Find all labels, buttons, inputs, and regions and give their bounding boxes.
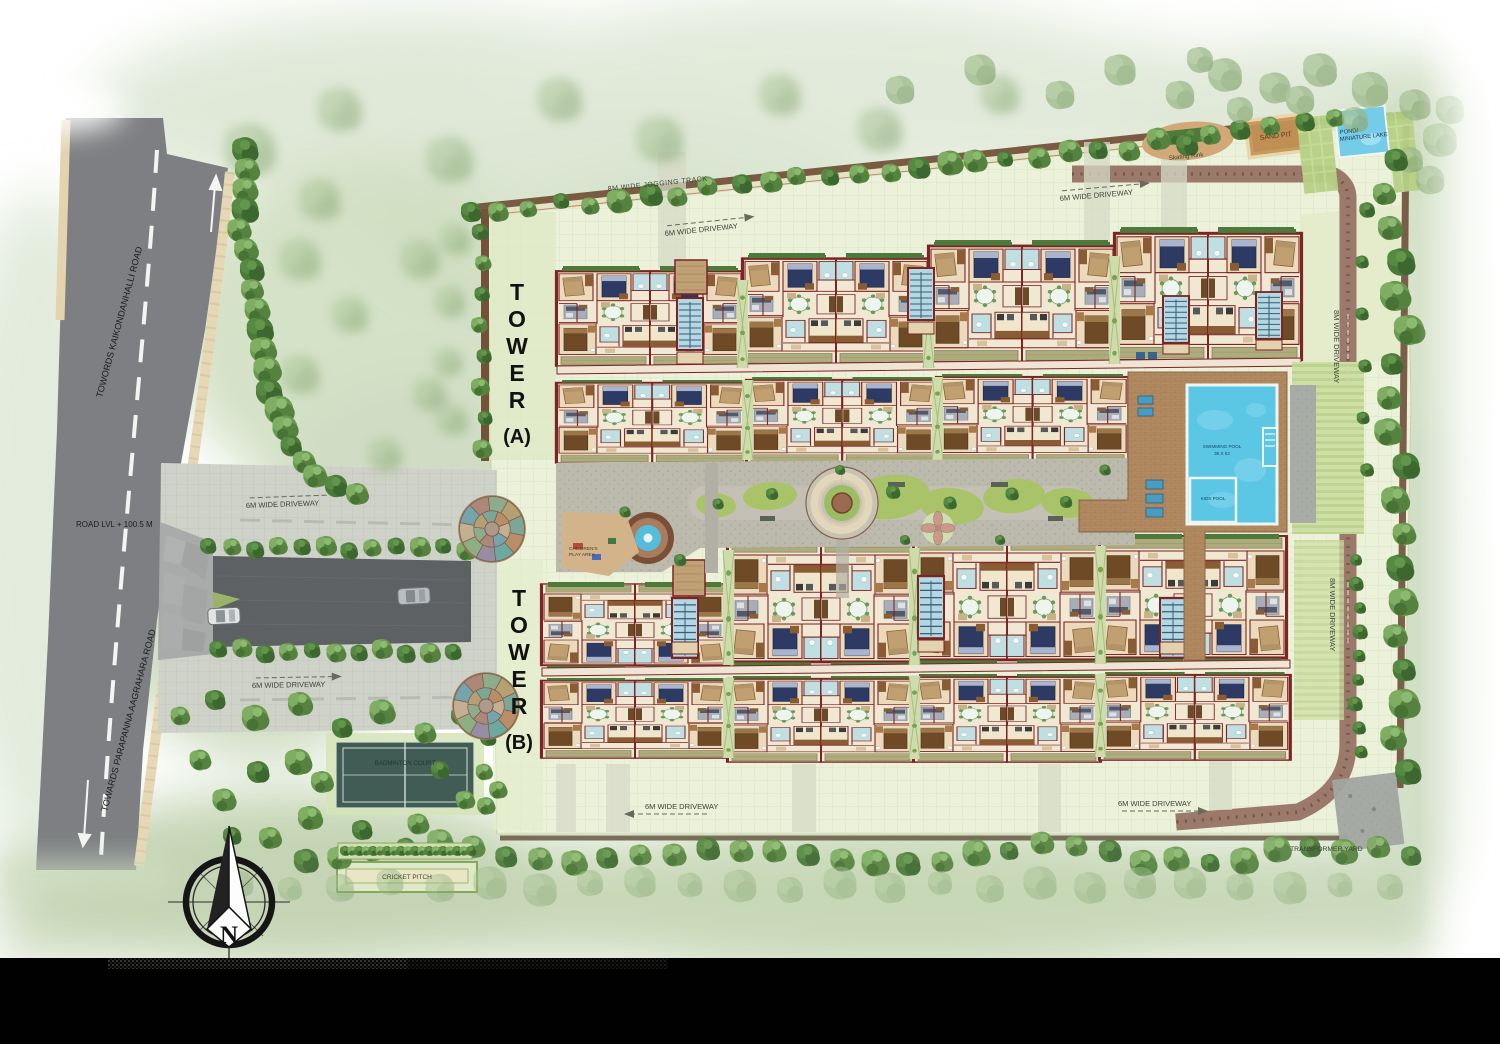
svg-text:(B): (B) — [505, 732, 533, 754]
svg-text:6M WIDE DRIVEWAY: 6M WIDE DRIVEWAY — [645, 802, 718, 811]
svg-text:TRANSFORMER YARD: TRANSFORMER YARD — [1290, 846, 1363, 853]
svg-text:6M WIDE DRIVEWAY: 6M WIDE DRIVEWAY — [1118, 799, 1191, 808]
svg-text:CHILDREN'S: CHILDREN'S — [569, 546, 598, 552]
svg-text:6M WIDE DRIVEWAY: 6M WIDE DRIVEWAY — [252, 680, 325, 690]
svg-text:CRICKET PITCH: CRICKET PITCH — [382, 874, 432, 881]
svg-text:T: T — [510, 279, 524, 305]
svg-text:ROAD LVL + 100.5 M: ROAD LVL + 100.5 M — [76, 520, 153, 529]
svg-text:8M WIDE DRIVEWAY: 8M WIDE DRIVEWAY — [1328, 578, 1337, 651]
svg-text:T: T — [512, 585, 526, 611]
svg-text:SWIMMING POOL: SWIMMING POOL — [1203, 444, 1242, 449]
svg-text:W: W — [506, 333, 528, 359]
svg-text:N: N — [220, 922, 238, 949]
svg-text:BADMINTON COURT: BADMINTON COURT — [375, 760, 436, 767]
svg-text:O: O — [508, 306, 526, 332]
svg-text:PLAY AREA: PLAY AREA — [569, 552, 596, 558]
svg-text:(A): (A) — [503, 426, 531, 448]
svg-text:E: E — [511, 666, 526, 692]
svg-text:R: R — [511, 693, 528, 719]
svg-text:O: O — [510, 612, 528, 638]
svg-text:E: E — [509, 360, 524, 386]
svg-text:8M WIDE DRIVEWAY: 8M WIDE DRIVEWAY — [1332, 310, 1341, 383]
svg-text:38 X 62: 38 X 62 — [1214, 451, 1230, 456]
svg-text:R: R — [509, 387, 526, 413]
svg-text:KIDS POOL: KIDS POOL — [1201, 496, 1226, 501]
svg-text:W: W — [508, 639, 530, 665]
